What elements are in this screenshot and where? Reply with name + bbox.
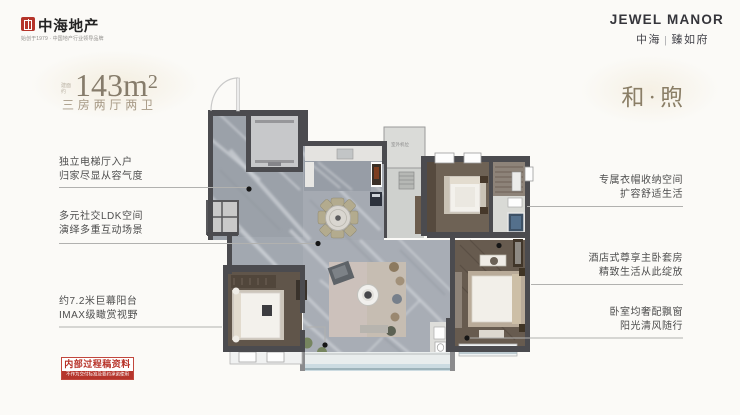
svg-text:室外机位: 室外机位 <box>391 141 409 148</box>
